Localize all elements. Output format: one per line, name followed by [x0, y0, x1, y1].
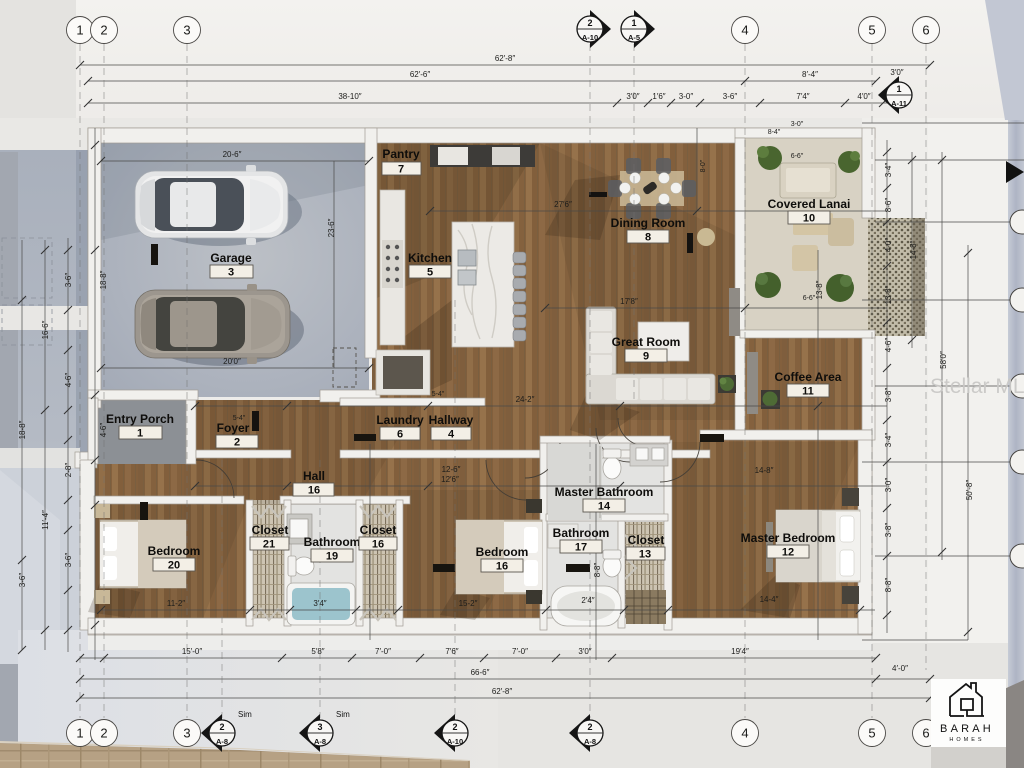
- svg-text:3: 3: [183, 23, 190, 38]
- svg-text:3-6″: 3-6″: [64, 273, 73, 288]
- svg-text:5: 5: [868, 726, 875, 741]
- svg-text:17: 17: [575, 542, 587, 554]
- svg-text:11′-4″: 11′-4″: [41, 510, 50, 530]
- svg-text:62′-8″: 62′-8″: [492, 687, 513, 696]
- svg-text:Great Room: Great Room: [612, 335, 681, 349]
- svg-text:3: 3: [317, 722, 322, 732]
- svg-text:16: 16: [372, 539, 384, 551]
- svg-text:4-0″: 4-0″: [884, 238, 893, 253]
- svg-text:Bedroom: Bedroom: [476, 545, 529, 559]
- svg-text:6: 6: [922, 726, 929, 741]
- svg-text:9: 9: [643, 351, 649, 363]
- svg-text:1: 1: [631, 18, 636, 28]
- svg-text:3-0″: 3-0″: [791, 121, 804, 128]
- svg-text:Foyer: Foyer: [217, 421, 250, 435]
- svg-text:23-6″: 23-6″: [327, 218, 336, 237]
- svg-text:4: 4: [741, 726, 748, 741]
- svg-text:4-6″: 4-6″: [64, 373, 73, 388]
- svg-text:27′6″: 27′6″: [554, 200, 572, 209]
- svg-text:13-8″: 13-8″: [815, 280, 824, 299]
- svg-text:8-8″: 8-8″: [593, 563, 602, 578]
- svg-text:1: 1: [76, 23, 83, 38]
- svg-text:3-6″: 3-6″: [64, 553, 73, 568]
- svg-text:66-6″: 66-6″: [471, 668, 490, 677]
- svg-text:A-5: A-5: [628, 33, 640, 42]
- svg-text:7′-0″: 7′-0″: [375, 647, 391, 656]
- svg-text:6-6″: 6-6″: [803, 295, 816, 302]
- svg-text:16: 16: [496, 561, 508, 573]
- svg-text:A-11: A-11: [891, 99, 907, 108]
- svg-text:7′6″: 7′6″: [445, 647, 458, 656]
- svg-text:Entry Porch: Entry Porch: [106, 412, 174, 426]
- svg-text:2′4″: 2′4″: [581, 596, 594, 605]
- svg-text:Pantry: Pantry: [382, 147, 420, 161]
- svg-text:50′-8″: 50′-8″: [965, 480, 974, 501]
- svg-text:Laundry: Laundry: [376, 413, 424, 427]
- svg-text:21: 21: [263, 539, 275, 551]
- svg-text:2: 2: [219, 722, 224, 732]
- svg-text:2: 2: [100, 726, 107, 741]
- svg-text:1′6″: 1′6″: [652, 92, 665, 101]
- svg-text:14-8″: 14-8″: [909, 240, 918, 259]
- svg-text:3: 3: [183, 726, 190, 741]
- svg-text:Closet: Closet: [628, 533, 665, 547]
- svg-text:4-6″: 4-6″: [884, 338, 893, 353]
- svg-text:3-4″: 3-4″: [884, 163, 893, 178]
- svg-text:12′6″: 12′6″: [441, 475, 459, 484]
- svg-text:8-0″: 8-0″: [700, 159, 707, 172]
- svg-text:Coffee Area: Coffee Area: [775, 370, 842, 384]
- svg-text:3-4″: 3-4″: [884, 433, 893, 448]
- svg-text:7′4″: 7′4″: [796, 92, 809, 101]
- svg-text:3′4″: 3′4″: [313, 599, 326, 608]
- svg-text:4′-0″: 4′-0″: [892, 664, 908, 673]
- svg-text:13: 13: [639, 549, 651, 561]
- svg-text:Master Bathroom: Master Bathroom: [555, 485, 654, 499]
- svg-text:3-8″: 3-8″: [884, 523, 893, 538]
- svg-text:HOMES: HOMES: [949, 737, 984, 743]
- svg-text:Dining Room: Dining Room: [611, 216, 686, 230]
- svg-text:Bathroom: Bathroom: [553, 526, 610, 540]
- svg-text:12: 12: [782, 547, 794, 559]
- svg-text:14-8″: 14-8″: [755, 466, 774, 475]
- svg-text:62′-6″: 62′-6″: [410, 70, 431, 79]
- svg-text:3-0″: 3-0″: [884, 478, 893, 493]
- svg-text:14-4″: 14-4″: [760, 595, 779, 604]
- svg-text:3′0″: 3′0″: [626, 92, 639, 101]
- svg-text:3-6″: 3-6″: [18, 573, 27, 588]
- svg-text:17′8″: 17′8″: [620, 297, 638, 306]
- svg-text:Bedroom: Bedroom: [148, 544, 201, 558]
- svg-text:12-6″: 12-6″: [442, 465, 461, 474]
- svg-text:1: 1: [137, 428, 143, 440]
- svg-text:20-6″: 20-6″: [223, 150, 242, 159]
- svg-text:Master Bedroom: Master Bedroom: [741, 531, 836, 545]
- svg-text:1: 1: [896, 84, 901, 94]
- svg-text:A-8: A-8: [216, 737, 228, 746]
- svg-text:5: 5: [868, 23, 875, 38]
- svg-text:6: 6: [922, 23, 929, 38]
- svg-text:4-6″: 4-6″: [99, 423, 108, 438]
- svg-text:15-2″: 15-2″: [459, 599, 478, 608]
- svg-text:38-10″: 38-10″: [338, 92, 361, 101]
- svg-text:Covered Lanai: Covered Lanai: [768, 197, 851, 211]
- svg-text:19: 19: [326, 551, 338, 563]
- svg-text:BARAH: BARAH: [940, 723, 994, 735]
- svg-text:Kitchen: Kitchen: [408, 251, 452, 265]
- svg-text:5-4″: 5-4″: [233, 415, 246, 422]
- svg-text:Closet: Closet: [252, 523, 289, 537]
- svg-text:13-8″: 13-8″: [884, 285, 893, 304]
- svg-text:6: 6: [397, 429, 403, 441]
- svg-text:24-2″: 24-2″: [516, 395, 535, 404]
- svg-text:2: 2: [587, 18, 592, 28]
- svg-text:14: 14: [598, 501, 611, 513]
- svg-text:58′0″: 58′0″: [939, 351, 948, 369]
- svg-text:3: 3: [228, 267, 234, 279]
- svg-text:7: 7: [398, 164, 404, 176]
- svg-text:5′8″: 5′8″: [311, 647, 324, 656]
- svg-text:20: 20: [168, 560, 180, 572]
- svg-text:6-6″: 6-6″: [791, 153, 804, 160]
- svg-text:3′0″: 3′0″: [578, 647, 591, 656]
- svg-text:4′0″: 4′0″: [857, 92, 870, 101]
- svg-text:2-8″: 2-8″: [64, 463, 73, 478]
- svg-text:4: 4: [741, 23, 748, 38]
- svg-text:8: 8: [645, 232, 651, 244]
- svg-text:2: 2: [452, 722, 457, 732]
- svg-text:19′4″: 19′4″: [731, 647, 749, 656]
- svg-text:20′0″: 20′0″: [223, 357, 241, 366]
- svg-text:10: 10: [803, 213, 815, 225]
- svg-text:Hallway: Hallway: [429, 413, 474, 427]
- svg-text:Sim: Sim: [336, 710, 350, 719]
- svg-text:3′0″: 3′0″: [890, 68, 903, 77]
- svg-text:5: 5: [427, 267, 433, 279]
- svg-text:18-8″: 18-8″: [18, 420, 27, 439]
- svg-text:Hall: Hall: [303, 469, 325, 483]
- svg-text:Bathroom: Bathroom: [304, 535, 361, 549]
- svg-text:5-4″: 5-4″: [432, 391, 445, 398]
- svg-text:8′-4″: 8′-4″: [802, 70, 818, 79]
- svg-text:2: 2: [100, 23, 107, 38]
- svg-text:Closet: Closet: [360, 523, 397, 537]
- svg-text:7′-0″: 7′-0″: [512, 647, 528, 656]
- svg-text:15′-0″: 15′-0″: [182, 647, 203, 656]
- svg-text:2: 2: [587, 722, 592, 732]
- svg-text:16: 16: [308, 485, 320, 497]
- svg-text:8-8″: 8-8″: [884, 578, 893, 593]
- svg-text:8-4″: 8-4″: [768, 129, 781, 136]
- svg-text:Stellar MLS: Stellar MLS: [930, 375, 1024, 398]
- svg-text:A-10: A-10: [582, 33, 598, 42]
- svg-text:1: 1: [76, 726, 83, 741]
- svg-text:A-8: A-8: [314, 737, 326, 746]
- svg-text:16-6″: 16-6″: [41, 320, 50, 339]
- svg-text:11: 11: [802, 386, 814, 398]
- svg-text:4: 4: [448, 429, 455, 441]
- svg-text:3-8″: 3-8″: [884, 388, 893, 403]
- svg-text:2: 2: [234, 437, 240, 449]
- svg-text:62′-8″: 62′-8″: [495, 54, 516, 63]
- svg-text:11-2″: 11-2″: [167, 599, 185, 608]
- svg-text:A-8: A-8: [584, 737, 596, 746]
- svg-text:3-6″: 3-6″: [723, 92, 738, 101]
- svg-text:Garage: Garage: [210, 251, 252, 265]
- svg-text:A-10: A-10: [447, 737, 463, 746]
- svg-text:3-0″: 3-0″: [679, 92, 694, 101]
- svg-text:18-8″: 18-8″: [99, 270, 108, 289]
- svg-text:Sim: Sim: [238, 710, 252, 719]
- svg-text:8-6″: 8-6″: [884, 198, 893, 213]
